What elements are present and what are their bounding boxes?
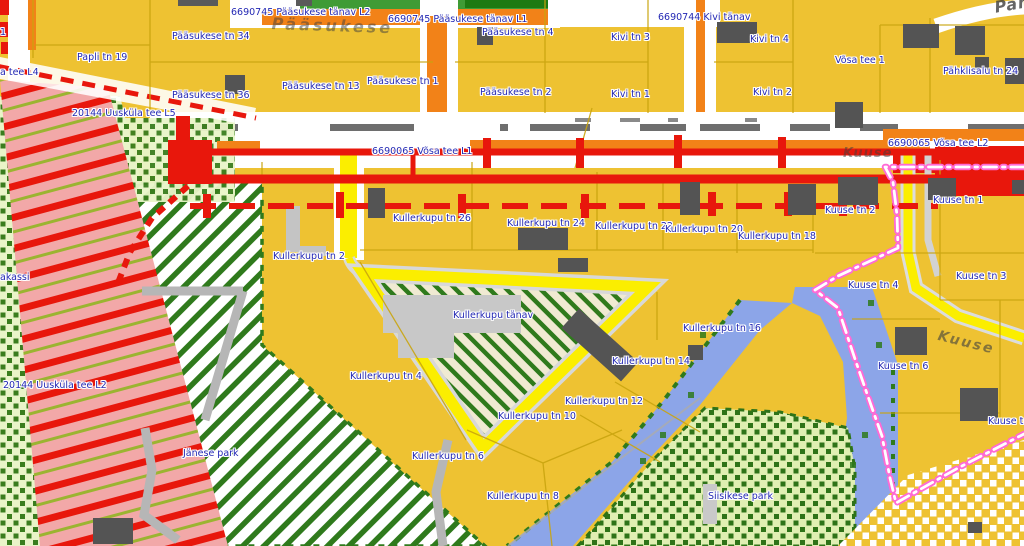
road-mark (500, 124, 508, 131)
building (717, 22, 757, 43)
building (680, 182, 700, 215)
building (368, 188, 385, 218)
road-mark (296, 0, 312, 6)
building (688, 345, 703, 360)
building (955, 26, 985, 55)
building (477, 27, 493, 45)
map-canvas[interactable]: 6690745 Pääsukese tänav L26690745 Pääsuk… (0, 0, 1024, 546)
building (518, 228, 568, 250)
building (838, 177, 878, 205)
building (903, 24, 939, 48)
road-mark (178, 0, 218, 6)
building (788, 184, 816, 215)
building (225, 75, 245, 94)
building (93, 518, 133, 544)
building (835, 102, 863, 128)
road-mark (700, 124, 760, 131)
building (1005, 58, 1024, 84)
road-mark (330, 124, 414, 131)
building (968, 522, 982, 533)
map-graphics (0, 0, 1024, 546)
building (1012, 180, 1024, 194)
building (895, 327, 927, 355)
building (928, 178, 956, 200)
building (558, 258, 588, 272)
road-mark (640, 124, 686, 131)
road-mark (745, 118, 757, 122)
building (975, 57, 989, 70)
road-mark (790, 124, 830, 131)
road-mark (668, 118, 678, 122)
road-mark (530, 124, 590, 131)
building (960, 388, 998, 421)
road-mark (620, 118, 640, 122)
